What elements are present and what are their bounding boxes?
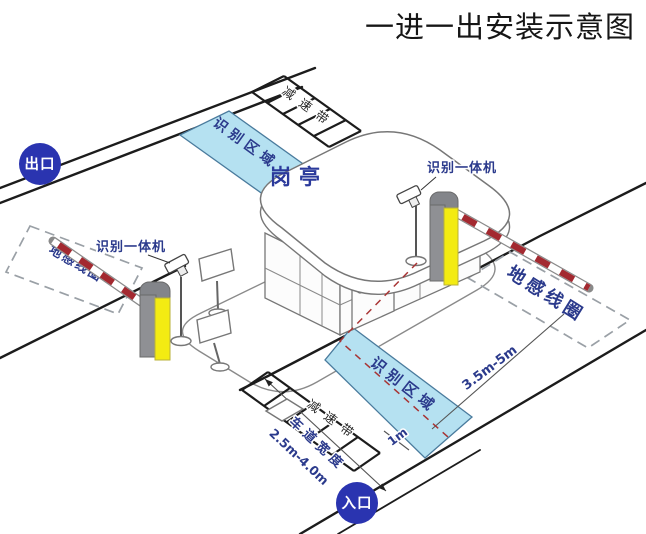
- barrier-left: 识别一体机: [53, 239, 193, 360]
- loop-distance-label: 3.5m-5m: [460, 343, 521, 394]
- barrier-machine-right: [430, 192, 458, 285]
- camera-right-label: 识别一体机: [427, 160, 497, 176]
- installation-diagram: 减速带 识别区域 地感线圈 地感线圈 识别区域 减速带 车道宽度 2.5m-4.…: [0, 0, 646, 534]
- camera-left-label: 识别一体机: [96, 239, 166, 255]
- diagram-canvas: 减速带 识别区域 地感线圈 地感线圈 识别区域 减速带 车道宽度 2.5m-4.…: [0, 0, 646, 534]
- exit-badge: 出口: [19, 143, 61, 185]
- barrier-machine-left: [140, 282, 170, 360]
- entrance-badge: 入口: [336, 482, 378, 524]
- entrance-badge-label: 入口: [342, 495, 373, 512]
- exit-badge-label: 出口: [25, 155, 56, 173]
- loop-distance-dimension: 3.5m-5m: [432, 314, 564, 429]
- booth-label: 岗亭: [270, 165, 328, 189]
- page-title: 一进一出安装示意图: [365, 10, 635, 44]
- ground-loop-right-label: 地感线圈: [503, 261, 589, 326]
